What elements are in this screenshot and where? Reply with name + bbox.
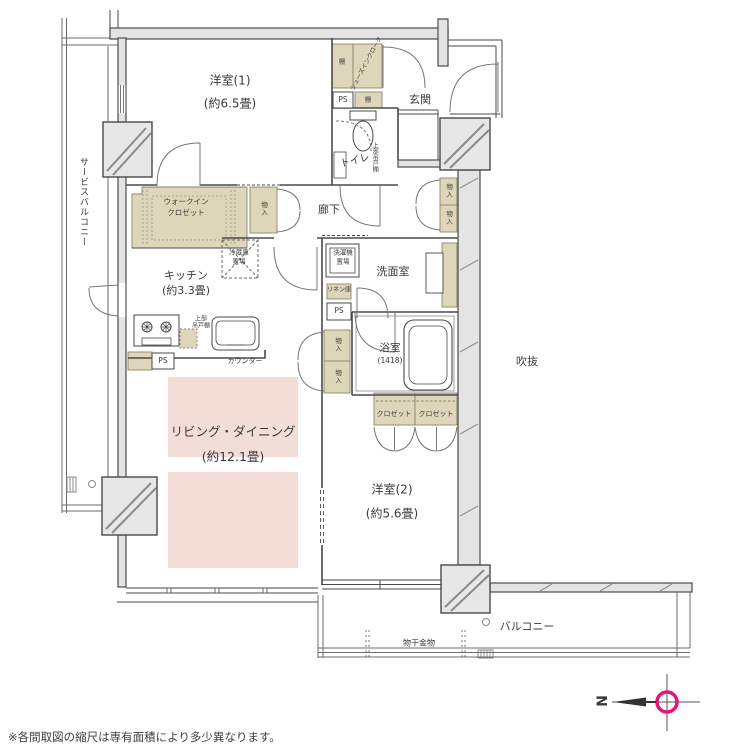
room-label-hallway: 廊下 xyxy=(318,204,340,216)
storage-label-upper-cabinet-toilet: 上部吊戸棚 xyxy=(371,142,378,172)
storage-label-wic-line2: クロゼット xyxy=(167,209,205,217)
storage-label-monoire-right-2: 物入 xyxy=(444,211,451,226)
wall-hatch-ticks xyxy=(460,178,672,591)
floorplan-drawing xyxy=(0,0,750,750)
fixture-label-washer-line1: 洗濯機 xyxy=(333,249,353,256)
fixture-label-ps-washroom: PS xyxy=(334,307,343,315)
room-label-western1: 洋室(1) xyxy=(210,74,251,87)
compass-north-label: N xyxy=(592,695,607,707)
bathtub xyxy=(404,320,452,390)
living-dining-highlight xyxy=(168,377,298,568)
storage-label-monoire-bath-2: 物入 xyxy=(333,370,340,385)
fixture-label-ps-entrance: PS xyxy=(338,96,347,104)
fixture-label-ps-kitchen: PS xyxy=(158,357,167,365)
room-label-washroom: 洗面室 xyxy=(377,266,410,278)
bottom-windows xyxy=(117,580,441,602)
room-size-western2: (約5.6畳) xyxy=(366,507,418,520)
storage-label-linen: リネン庫 xyxy=(327,288,351,295)
room-size-kitchen: (約3.3畳) xyxy=(162,285,210,297)
fixture-label-fridge-line2: 置場 xyxy=(233,258,246,265)
fixture-label-washer-line2: 置場 xyxy=(337,258,350,265)
fixture-label-counter: カウンター xyxy=(228,358,263,366)
storage-label-monoire-bath-1: 物入 xyxy=(333,338,340,353)
room-label-bathroom: 浴室 xyxy=(380,343,401,355)
room-label-western2: 洋室(2) xyxy=(372,483,413,496)
room-label-kitchen: キッチン xyxy=(164,270,208,282)
room-label-balcony: バルコニー xyxy=(500,621,555,633)
storage-label-monoire-right-1: 物入 xyxy=(444,184,451,199)
fixture-label-laundry-hardware: 物干金物 xyxy=(403,640,435,649)
room-label-service-balcony: サービスバルコニー xyxy=(77,157,87,247)
storage-label-wic-line1: ウォークイン xyxy=(164,198,209,206)
storage-label-monoire-hall: 物入 xyxy=(259,202,266,217)
storage-label-closet-2: クロゼット xyxy=(419,411,454,419)
washroom-vanity xyxy=(426,253,443,293)
storage-label-closet-1: クロゼット xyxy=(377,411,412,419)
fixture-label-fridge-line1: 冷蔵庫 xyxy=(229,249,249,256)
scale-note: ※各間取図の縮尺は専有面積により多少異なります。 xyxy=(8,731,281,744)
room-label-living-dining: リビング・ダイニング xyxy=(170,425,295,439)
room-size-western1: (約6.5畳) xyxy=(204,97,256,110)
compass-icon xyxy=(612,674,700,731)
storage-label-upper-cabinet-k2: 吊戸棚 xyxy=(192,324,210,331)
storage-label-shelf-1: 棚 xyxy=(339,58,346,65)
room-label-void: 吹抜 xyxy=(516,356,538,368)
room-size-bathroom: (1418) xyxy=(378,357,403,365)
service-balcony-structure xyxy=(62,18,118,513)
floorplan-canvas: 洋室(1) (約6.5畳) 玄関 シューズインクローク 棚 PS 棚 トイレ 上… xyxy=(0,0,750,750)
room-size-living-dining: (約12.1畳) xyxy=(202,450,265,464)
storage-label-shelf-2: 棚 xyxy=(365,96,372,103)
room-label-entrance: 玄関 xyxy=(409,94,431,106)
